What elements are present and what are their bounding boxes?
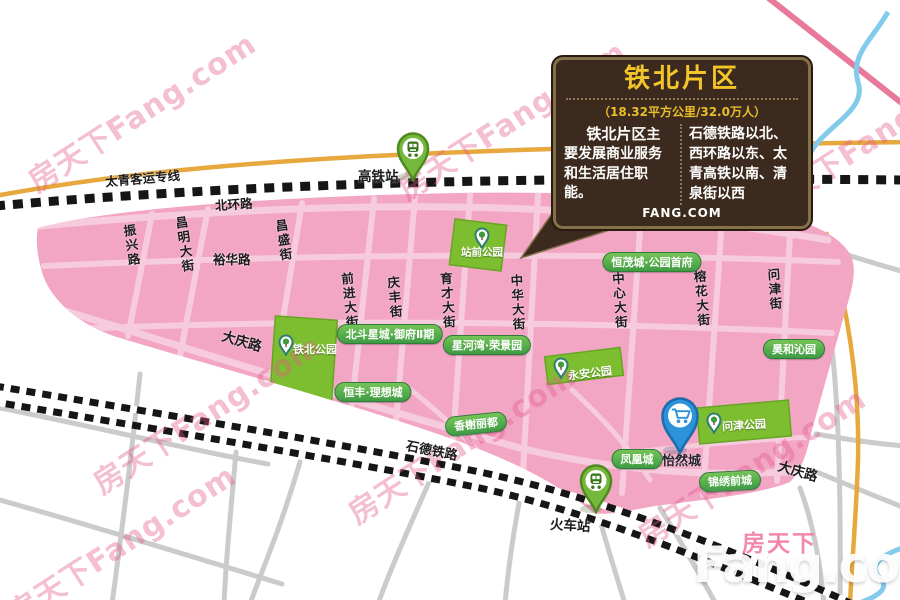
train-station-pin-huoche[interactable] — [576, 462, 616, 514]
dotted-divider — [566, 98, 798, 100]
street-label-qingfeng: 庆丰街 — [385, 276, 401, 320]
community-badge-hengmaocheng[interactable]: 恒茂城·公园首府 — [602, 252, 701, 272]
station-label-huoche: 火车站 — [550, 513, 591, 535]
park-label-tiebei: 铁北公园 — [293, 341, 337, 357]
info-title: 铁北片区 — [556, 60, 808, 94]
road-label-beihuan: 北环路 — [214, 193, 253, 215]
park-label-zhanqian: 站前公园 — [461, 245, 503, 260]
community-badge-haoheqinyuan[interactable]: 昊和沁园 — [763, 339, 825, 359]
park-pin-icon — [705, 411, 723, 434]
street-label-zhongxin: 中心大街 — [610, 272, 627, 331]
poi-label-yirancheng: 怡然城 — [662, 450, 701, 469]
fang-brand-text: FANG.COM — [556, 206, 808, 220]
fang-logo-chinese: 房天下 — [742, 524, 817, 558]
info-stats: （18.32平方公里/32.0万人） — [556, 103, 808, 120]
park-label-wenjin: 问津公园 — [721, 415, 766, 434]
cart-marker-pin[interactable] — [657, 394, 703, 456]
street-label-zhonghua: 中华大街 — [508, 274, 524, 333]
community-badge-hengfeng[interactable]: 恒丰·理想城 — [334, 382, 411, 402]
street-label-wenjin: 问津街 — [765, 268, 781, 312]
info-district-name: 铁北片区 — [586, 125, 646, 143]
road-label-yuhua: 裕华路 — [213, 249, 251, 268]
info-boundary: 石德铁路以北、西环路以东、太青高铁以南、清泉街以西 — [682, 124, 800, 205]
community-badge-beidouxingcheng[interactable]: 北斗星城·御府Ⅱ期 — [337, 324, 443, 344]
district-info-box: 铁北片区 （18.32平方公里/32.0万人） 铁北片区主要发展商业服务和生活居… — [553, 57, 811, 229]
community-badge-jinxiuqiancheng[interactable]: 锦绣前城 — [699, 469, 762, 492]
train-station-pin-gaotie[interactable] — [393, 130, 433, 182]
station-label-gaotie: 高铁站 — [358, 165, 399, 185]
street-label-yucai: 育才大街 — [438, 272, 455, 331]
map-screenshot: 房天下Fang.com 房天下Fang.com 房天下Fang.com 房天下F… — [0, 0, 900, 600]
community-badge-fenghuangcheng[interactable]: 凤凰城 — [612, 449, 663, 469]
community-badge-xinghewan[interactable]: 星河湾·荣景园 — [443, 335, 531, 355]
info-description: 铁北片区主要发展商业服务和生活居住职能。 — [564, 124, 682, 205]
